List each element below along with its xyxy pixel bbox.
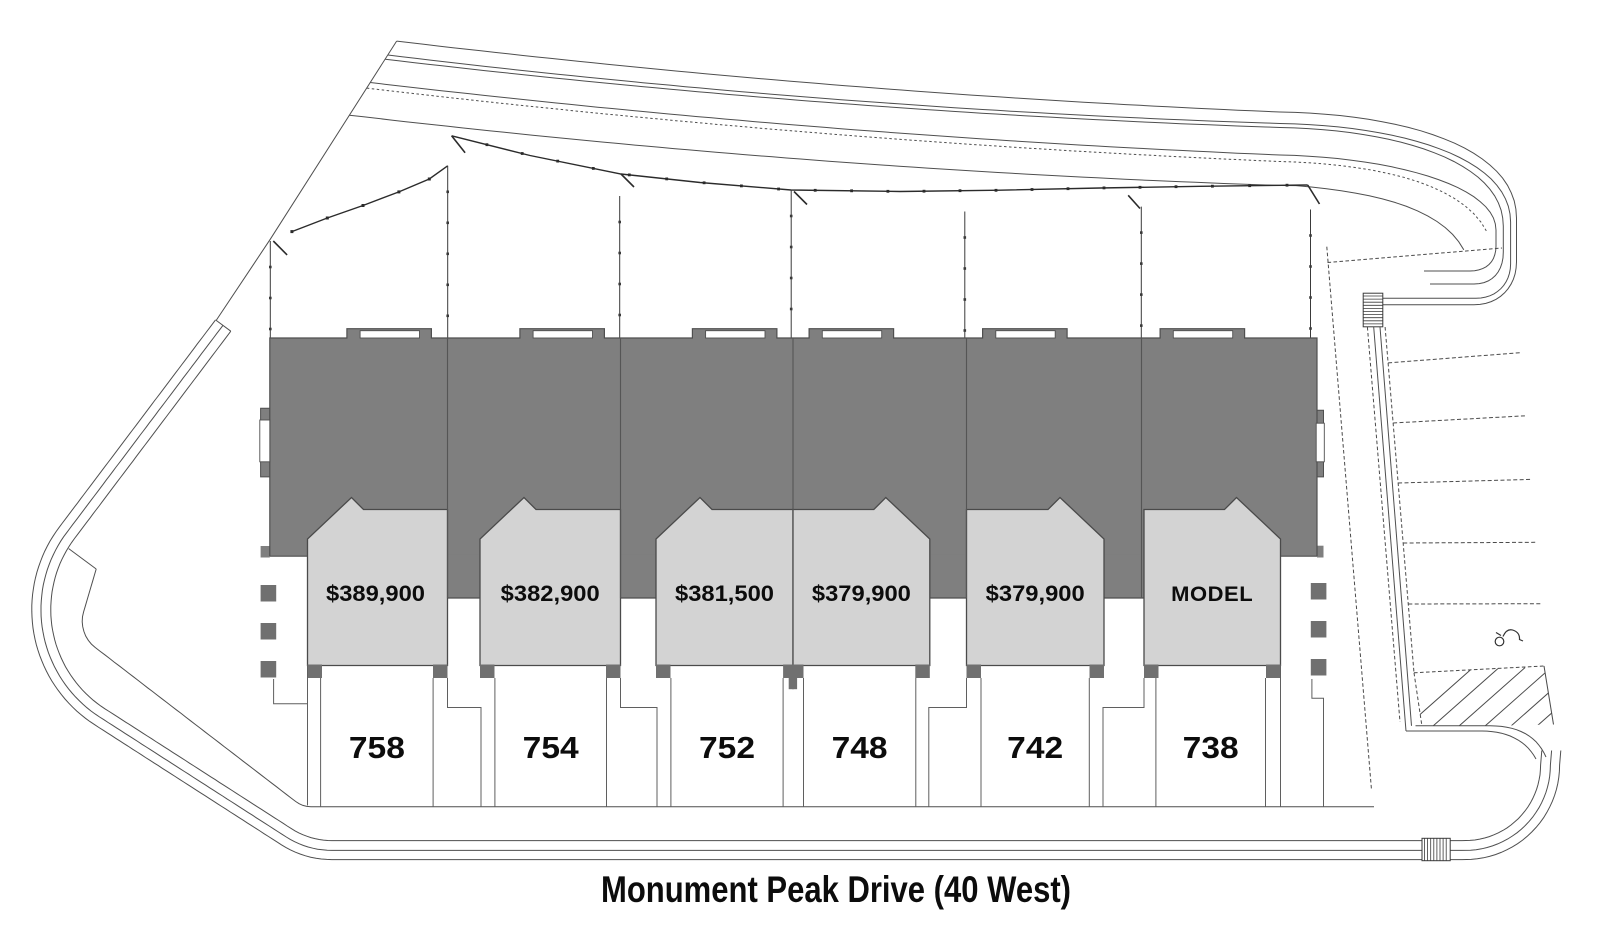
svg-text:748: 748 [832, 730, 888, 765]
svg-text:752: 752 [699, 730, 755, 765]
svg-text:758: 758 [349, 730, 405, 765]
svg-text:738: 738 [1183, 730, 1239, 765]
svg-text:$389,900: $389,900 [326, 581, 425, 606]
svg-text:$379,900: $379,900 [986, 581, 1085, 606]
svg-text:$381,500: $381,500 [675, 581, 774, 606]
svg-text:$382,900: $382,900 [501, 581, 600, 606]
svg-text:Monument Peak Drive (40 West): Monument Peak Drive (40 West) [601, 869, 1071, 910]
svg-text:754: 754 [523, 730, 580, 765]
svg-text:$379,900: $379,900 [812, 581, 911, 606]
svg-text:742: 742 [1007, 730, 1063, 765]
svg-text:MODEL: MODEL [1171, 583, 1253, 606]
